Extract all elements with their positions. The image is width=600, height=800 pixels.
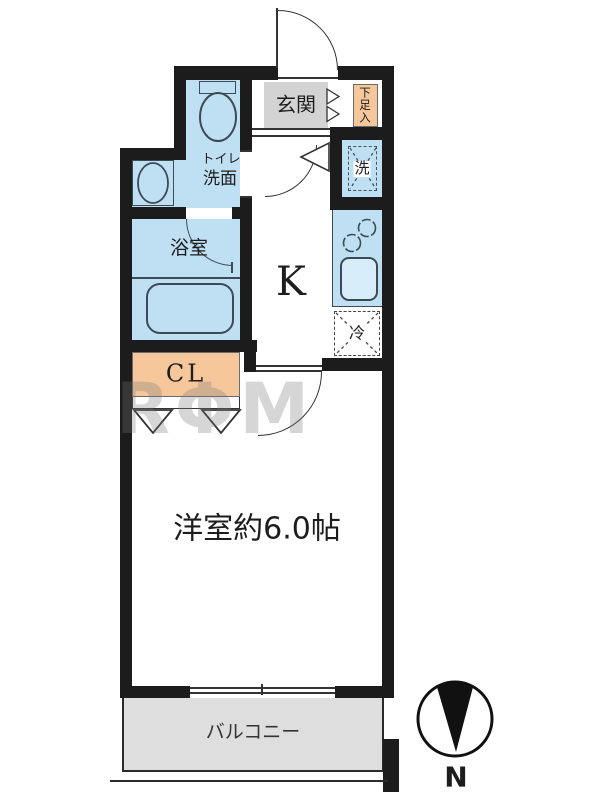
bifold-door-symbol — [327, 107, 339, 122]
washroom-label: 洗面 — [203, 171, 237, 189]
bifold-door-symbol — [327, 89, 339, 104]
bathroom-label: 浴室 — [170, 239, 208, 259]
kitchen-door-leaf — [301, 143, 329, 171]
toilet-label: トイレ — [201, 153, 240, 167]
washbasin-oval — [138, 163, 168, 203]
washer-space-label: 洗 — [353, 161, 370, 177]
stove-burner — [344, 235, 361, 252]
shoe-storage-label: 下足入 — [359, 86, 371, 124]
entrance-label: 玄関 — [276, 95, 316, 116]
watermark: RΦM — [116, 368, 314, 450]
stove-burner — [359, 220, 376, 237]
toilet-bowl — [200, 93, 236, 141]
refrigerator-label: 冷 — [348, 326, 366, 343]
floor-plan: RΦM — [0, 0, 600, 800]
compass-north-label: N — [444, 762, 467, 791]
western-room-label: 洋室約6.0帖 — [173, 513, 341, 545]
kitchen-label: K — [276, 261, 306, 303]
closet-label: CL — [166, 361, 206, 386]
balcony-label: バルコニー — [206, 723, 301, 743]
